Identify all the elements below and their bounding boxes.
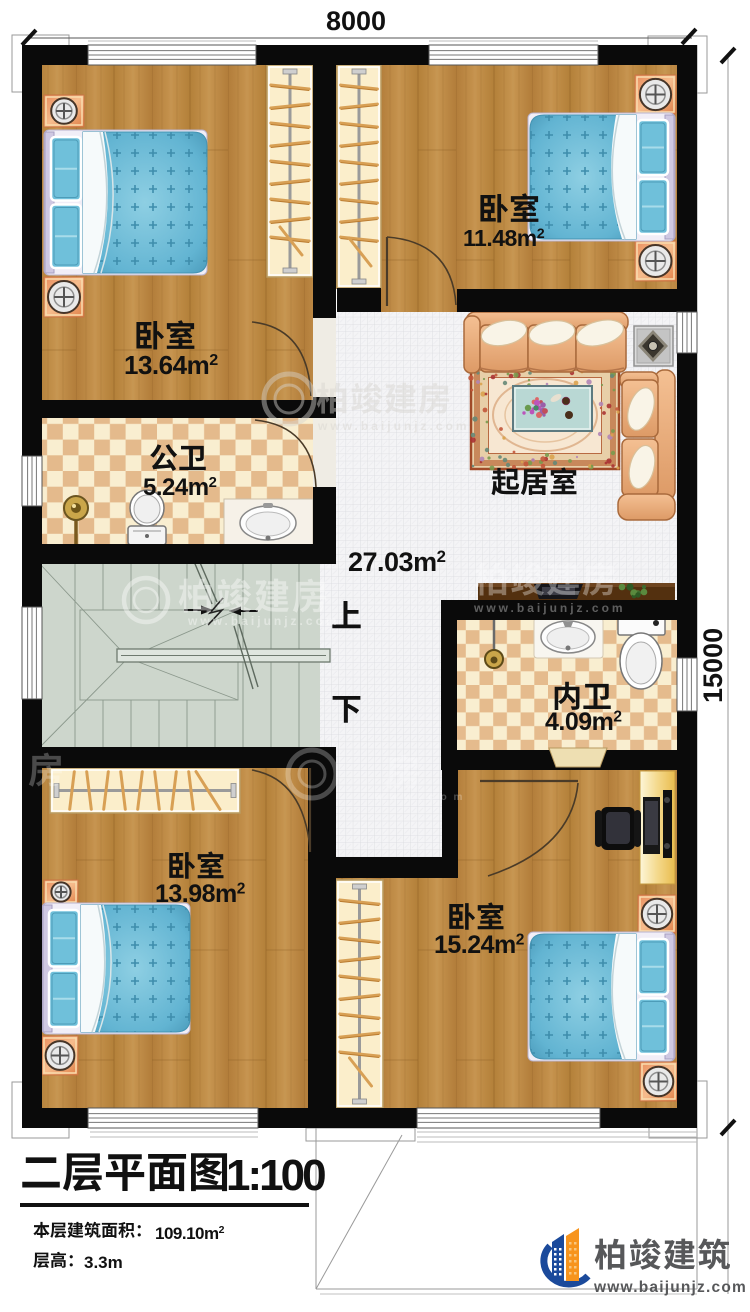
svg-text:27.03m2: 27.03m2 xyxy=(348,547,446,577)
svg-text:109.10m2: 109.10m2 xyxy=(155,1224,225,1243)
svg-text:11.48m2: 11.48m2 xyxy=(463,225,545,251)
svg-text:3.3m: 3.3m xyxy=(84,1253,123,1272)
svg-text:5.24m2: 5.24m2 xyxy=(143,474,217,501)
svg-text:www.baijunjz.com: www.baijunjz.com xyxy=(593,1279,747,1296)
svg-text:15000: 15000 xyxy=(698,628,728,703)
svg-text:1:100: 1:100 xyxy=(226,1151,325,1200)
svg-text:w w w . c o m: w w w . c o m xyxy=(374,792,464,803)
svg-text:13.64m2: 13.64m2 xyxy=(124,350,218,380)
svg-text:www.baijunjz.com: www.baijunjz.com xyxy=(187,614,340,628)
svg-text:4.09m2: 4.09m2 xyxy=(545,708,622,736)
svg-text:8000: 8000 xyxy=(326,6,386,36)
svg-text:15.24m2: 15.24m2 xyxy=(434,931,524,959)
svg-text:www.baijunjz.com: www.baijunjz.com xyxy=(473,601,626,615)
svg-text:13.98m2: 13.98m2 xyxy=(155,880,245,908)
svg-text:www.baijunjz.com: www.baijunjz.com xyxy=(317,419,470,433)
